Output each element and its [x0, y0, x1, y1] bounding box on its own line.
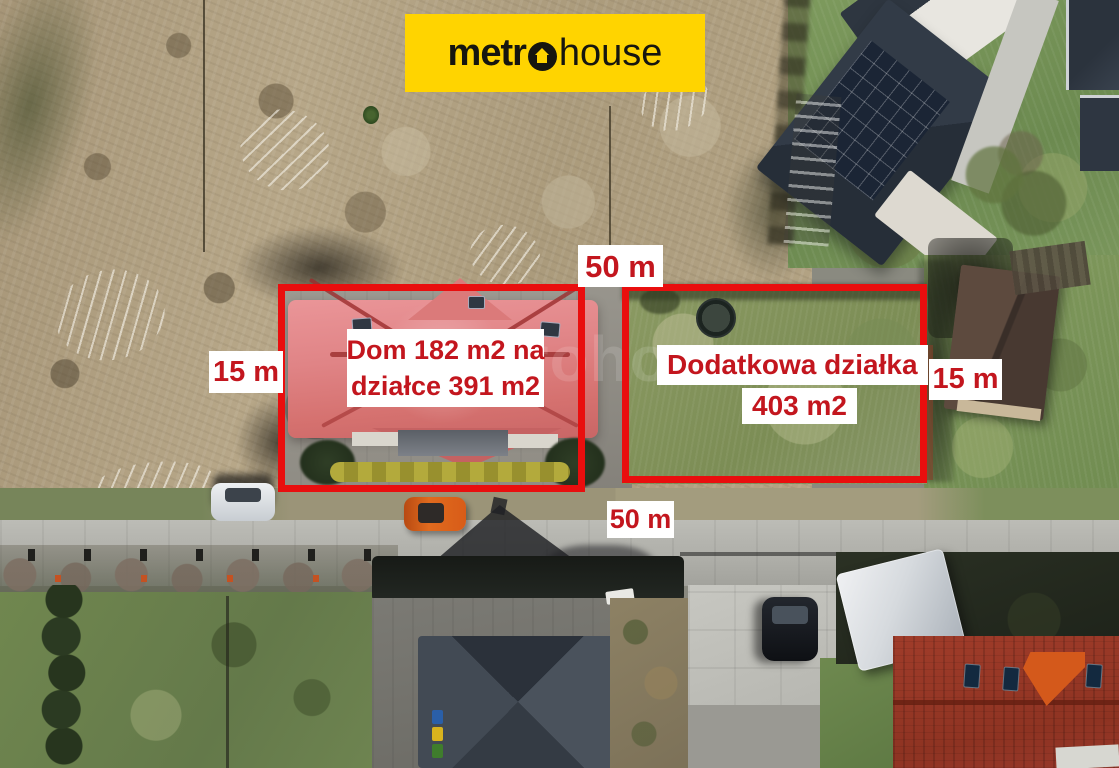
building-corner [1055, 744, 1119, 768]
width-label-left: 15 m [209, 351, 283, 393]
carport-roof [372, 556, 684, 602]
car-windshield [225, 488, 261, 502]
house-roof-glyph [535, 48, 549, 55]
length-label-top: 50 m [578, 245, 663, 287]
neighbor-house-roof [1080, 95, 1119, 171]
lawn-strip [820, 658, 898, 768]
fence-post-bases [55, 575, 385, 582]
main-plot-label-line2: działce 391 m2 [351, 373, 540, 400]
logo-text-metro: metr [448, 32, 526, 75]
roof-ridge-cap [893, 700, 1119, 705]
recycling-bin-green [432, 744, 443, 758]
roof-skylight [1085, 663, 1103, 688]
brand-logo: metr house [405, 14, 705, 92]
field-fence-line [203, 0, 205, 252]
length-label-bottom: 50 m [607, 501, 674, 538]
car-windshield [772, 606, 808, 624]
garden-fence [226, 596, 229, 768]
aerial-listing-photo: metrohouse 50 m 15 m Dom 182 m2 na dział… [0, 0, 1119, 768]
gray-pyramid-roof [418, 636, 618, 768]
main-plot-label-line1: Dom 182 m2 na [346, 337, 544, 364]
logo-text-house: house [559, 32, 663, 75]
roof-skylight [1002, 666, 1020, 691]
neighbor-house-roof [1066, 0, 1119, 90]
extra-plot-label-line2: 403 m2 [742, 388, 857, 424]
house-body-glyph [537, 55, 547, 63]
roof-skylight [963, 663, 981, 688]
gravel-garden [610, 598, 695, 768]
extra-plot-label-line1: Dodatkowa działka [657, 345, 928, 385]
recycling-bin-yellow [432, 727, 443, 741]
paved-area [688, 705, 823, 768]
fence-posts [28, 549, 388, 561]
recycling-bin-blue [432, 710, 443, 724]
main-plot-label: Dom 182 m2 na działce 391 m2 [347, 329, 544, 407]
logo-o-house-icon [528, 42, 557, 71]
conifer-tree [363, 106, 379, 124]
cypress-hedge [36, 585, 92, 768]
grass-verge [0, 488, 1119, 522]
car-windshield [418, 503, 444, 523]
width-label-right: 15 m [929, 359, 1002, 400]
